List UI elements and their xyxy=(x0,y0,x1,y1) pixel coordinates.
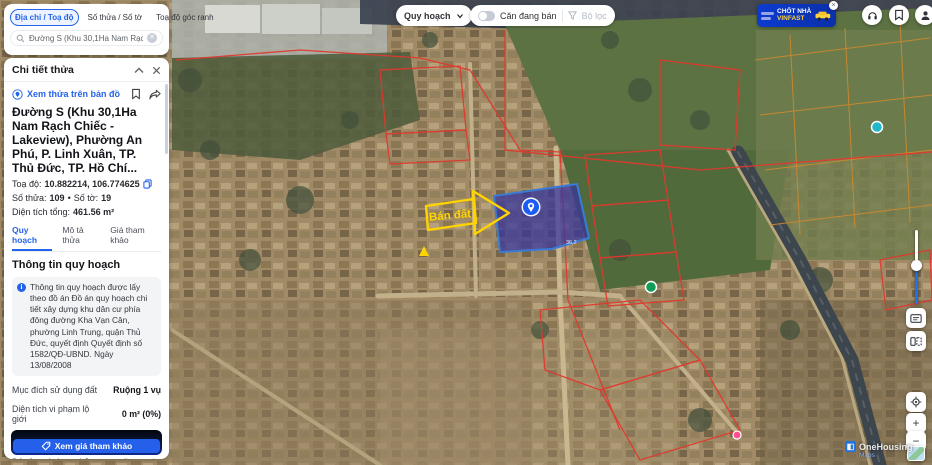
split-view-icon xyxy=(910,336,922,347)
search-box[interactable]: ✕ xyxy=(10,30,163,46)
road-width-label: Độ rộng đường nhỏ nhất xyxy=(12,457,102,459)
vinfast-ad-banner[interactable]: CHỐT NHÀ VINFAST × xyxy=(757,4,836,27)
map-pin-icon xyxy=(12,89,23,100)
clear-search-icon[interactable]: ✕ xyxy=(147,33,157,43)
planning-note: i Thông tin quy hoạch được lấy theo đồ á… xyxy=(12,277,161,376)
reference-price-label: Xem giá tham khảo xyxy=(55,441,132,451)
tab-corner-coords[interactable]: Toạ độ góc ranh xyxy=(151,9,218,26)
view-on-map-link[interactable]: Xem thửa trên bản đồ xyxy=(27,89,127,99)
parcel-edge-label: 36,2 xyxy=(566,240,577,246)
divider xyxy=(562,10,563,22)
share-icon[interactable] xyxy=(149,89,161,100)
parcel-title: Đường S (Khu 30,1Ha Nam Rạch Chiếc - Lak… xyxy=(12,105,161,175)
filter-funnel-icon xyxy=(568,11,577,20)
panel-title: Chi tiết thửa xyxy=(12,64,126,76)
planning-note-text: Thông tin quy hoạch được lấy theo đồ án … xyxy=(30,282,155,371)
violation-label: Diện tích vi phạm lộ giới xyxy=(12,404,104,424)
search-card: Địa chỉ / Toạ độ Số thửa / Số tờ Toạ độ … xyxy=(4,4,169,55)
selected-parcel[interactable]: 36,2 xyxy=(494,184,589,252)
area-value: 461.56 m² xyxy=(73,207,114,217)
tab-address-coords[interactable]: Địa chỉ / Toạ độ xyxy=(10,9,79,26)
locate-me-button[interactable] xyxy=(906,392,926,412)
watermark-brand: OneHousing xyxy=(859,442,913,452)
violation-value: 0 m² (0%) xyxy=(122,409,161,419)
plot-sheet-row: Số thửa: 109 • Số tờ: 19 xyxy=(12,193,161,203)
crosshair-icon xyxy=(910,396,922,408)
blue-poi-marker xyxy=(872,122,883,133)
panel-scrollbar[interactable] xyxy=(165,84,168,154)
coords-value: 10.882214, 106.774625 xyxy=(45,179,140,189)
search-icon xyxy=(16,34,25,43)
onehousing-logo-icon: ◧ xyxy=(845,441,856,452)
search-mode-tabs: Địa chỉ / Toạ độ Số thửa / Số tờ Toạ độ … xyxy=(10,9,163,26)
info-icon: i xyxy=(17,283,26,292)
chevron-up-icon xyxy=(134,67,144,74)
watermark-sub: Maps xyxy=(859,452,913,459)
bookmark-parcel-icon[interactable] xyxy=(131,88,141,100)
land-use-label: Mục đích sử dụng đất xyxy=(12,385,97,395)
tree-poi-marker xyxy=(646,282,657,293)
saved-button[interactable] xyxy=(889,5,909,25)
ad-line2: VINFAST xyxy=(777,16,811,23)
detail-panel-header: Chi tiết thửa xyxy=(4,58,169,82)
listings-filter-group: Căn đang bán Bộ lọc xyxy=(470,5,615,26)
zoom-slider[interactable] xyxy=(912,230,921,304)
filter-button[interactable]: Bộ lọc xyxy=(582,11,607,21)
layer-dropdown-label: Quy hoạch xyxy=(404,11,451,21)
area-label: Diện tích tổng: xyxy=(12,207,70,217)
tab-plot-sheet[interactable]: Số thửa / Số tờ xyxy=(83,9,148,26)
parcel-pin-icon xyxy=(522,198,541,217)
layer-dropdown[interactable]: Quy hoạch xyxy=(396,5,472,26)
dot-separator: • xyxy=(68,193,71,203)
reference-price-cta[interactable]: Xem giá tham khảo xyxy=(11,430,162,455)
tab-description[interactable]: Mô tả thửa xyxy=(62,223,100,251)
planning-heading: Thông tin quy hoạch xyxy=(12,259,161,271)
bookmark-icon xyxy=(894,9,904,21)
coords-row: Toạ độ: 10.882214, 106.774625 xyxy=(12,179,161,189)
legend-icon xyxy=(910,313,922,324)
ad-close-icon[interactable]: × xyxy=(829,1,838,10)
car-image xyxy=(814,9,832,23)
kv-row-land-use: Mục đích sử dụng đất Ruộng 1 vụ xyxy=(12,385,161,395)
support-button[interactable] xyxy=(862,5,882,25)
sheet-label: Số tờ: xyxy=(74,193,98,203)
app: 36,2 Bán đất Quy hoạch xyxy=(0,0,932,465)
ad-decoration xyxy=(761,12,774,20)
land-use-value: Ruộng 1 vụ xyxy=(113,385,161,395)
listings-toggle-label: Căn đang bán xyxy=(500,11,557,21)
copy-icon xyxy=(143,179,152,189)
detail-tabs: Quy hoạch Mô tả thửa Giá tham khảo xyxy=(12,223,161,252)
pink-poi-marker xyxy=(733,431,741,439)
person-icon xyxy=(920,10,931,21)
copy-coords-button[interactable] xyxy=(143,179,152,189)
road-width-value: Đang cập nhật xyxy=(108,457,161,459)
close-panel-button[interactable] xyxy=(152,66,161,75)
listings-toggle[interactable] xyxy=(478,11,495,21)
reference-price-button[interactable]: Xem giá tham khảo xyxy=(13,439,160,453)
headset-icon xyxy=(867,10,878,21)
split-view-button[interactable] xyxy=(906,331,926,351)
search-input[interactable] xyxy=(29,34,143,43)
detail-panel-body: Xem thửa trên bản đồ Đường S (Khu 30,1Ha… xyxy=(4,82,169,459)
view-on-map-row: Xem thửa trên bản đồ xyxy=(12,88,161,100)
plot-label: Số thửa: xyxy=(12,193,47,203)
chevron-down-icon xyxy=(456,12,464,20)
zoom-in-button[interactable]: + xyxy=(906,413,926,433)
kv-row-min-road-width: Độ rộng đường nhỏ nhất Đang cập nhật xyxy=(12,457,161,459)
area-row: Diện tích tổng: 461.56 m² xyxy=(12,207,161,217)
coords-label: Toạ độ: xyxy=(12,179,42,189)
legend-button[interactable] xyxy=(906,308,926,328)
kv-row-violation-area: Diện tích vi phạm lộ giới 0 m² (0%) xyxy=(12,404,161,424)
parcel-detail-panel: Chi tiết thửa Xem thửa trên bản đồ xyxy=(4,58,169,459)
collapse-panel-button[interactable] xyxy=(134,67,144,74)
account-button[interactable] xyxy=(915,5,932,25)
ad-text: CHỐT NHÀ VINFAST xyxy=(777,9,811,22)
sheet-value: 19 xyxy=(101,193,111,203)
price-tag-icon xyxy=(41,441,51,451)
zoom-slider-knob[interactable] xyxy=(911,260,922,271)
tab-planning[interactable]: Quy hoạch xyxy=(12,223,52,251)
watermark: ◧ OneHousing Maps xyxy=(845,441,913,459)
close-icon xyxy=(152,66,161,75)
plot-value: 109 xyxy=(50,193,65,203)
tab-reference-price[interactable]: Giá tham khảo xyxy=(110,223,161,251)
